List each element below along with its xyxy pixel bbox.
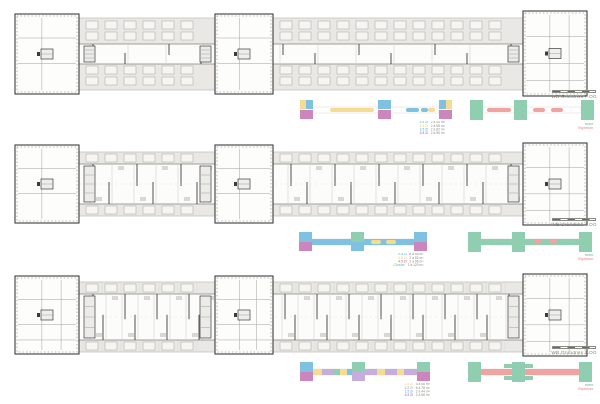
legend-entry: Eigentum (578, 127, 593, 131)
unit-color-segment (377, 369, 385, 375)
unit-color-segment (579, 362, 592, 382)
unit-color-segment (525, 364, 533, 368)
unit-mix-legend: MieteEigentum (578, 254, 593, 261)
plan-title: WB Grundriss 4.OG (552, 223, 597, 228)
legend-entry: Eigentum (578, 258, 593, 262)
unit-color-segment (397, 369, 404, 375)
unit-color-segment (404, 369, 417, 375)
drawing-sheet: WB Grundriss 7.OG WB Grundriss 4.OG WB G… (0, 0, 600, 404)
floor-plan-top (0, 6, 600, 98)
unit-color-segment (322, 369, 333, 375)
unit-color-segment (414, 242, 427, 251)
unit-color-segment (479, 369, 581, 375)
floor-plan-middle (0, 140, 600, 232)
unit-color-segment (340, 369, 347, 375)
plan-title: WB Grundriss 1.OG (552, 351, 597, 356)
unit-color-segment (351, 232, 364, 242)
unit-color-segment (386, 240, 396, 244)
unit-color-segment (300, 372, 313, 381)
unit-mix-legend: 1.5 Zi2 à 44 m²2.5 Zi2 à 58 m²3.5 Zi2 à … (420, 121, 445, 136)
unit-color-segment (512, 362, 525, 382)
floor-plan-bottom (0, 272, 600, 358)
unit-color-segment (385, 369, 397, 375)
unit-color-segment (378, 110, 391, 119)
unit-color-segment (421, 108, 428, 112)
unit-color-segment (352, 372, 365, 381)
unit-color-segment (406, 108, 419, 112)
unit-color-segment (417, 372, 430, 381)
unit-color-segment (306, 100, 313, 109)
unit-color-segment (487, 108, 511, 112)
unit-color-segment (351, 242, 364, 251)
unit-color-segment (551, 108, 563, 112)
unit-color-segment (378, 100, 391, 109)
unit-color-segment (525, 376, 533, 380)
legend-entry: Cluster1 à 120 m² (393, 264, 423, 268)
unit-color-segment (428, 108, 435, 112)
unit-mix-legend: MieteEigentum (578, 123, 593, 130)
unit-color-segment (439, 110, 452, 119)
unit-color-segment (581, 100, 594, 120)
unit-mix-legend: 2.5 Zi4 à 58 m²3.5 Zi6 à 78 m²1.5 Zi2 à … (405, 383, 430, 398)
unit-color-segment (300, 362, 313, 372)
unit-color-segment (470, 100, 483, 120)
unit-color-segment (330, 108, 374, 112)
unit-color-segment (446, 100, 452, 109)
unit-color-segment (468, 362, 481, 382)
unit-color-segment (533, 108, 545, 112)
scale-bar (552, 218, 596, 221)
unit-color-segment (300, 100, 306, 109)
unit-color-segment (534, 240, 542, 244)
legend-entry: 4.5 Zi2 à 96 m² (405, 394, 430, 398)
unit-color-segment (417, 362, 430, 372)
unit-color-segment (439, 100, 446, 109)
unit-color-segment (549, 240, 557, 244)
unit-color-segment (333, 369, 340, 375)
unit-color-segment (512, 232, 525, 252)
unit-color-segment (347, 369, 352, 375)
scale-bar (552, 90, 596, 93)
unit-color-segment (313, 369, 322, 375)
unit-color-segment (414, 232, 427, 242)
unit-color-segment (299, 242, 312, 251)
scale-bar (552, 346, 596, 349)
unit-color-segment (579, 232, 592, 252)
unit-color-segment (479, 239, 581, 245)
unit-mix-diagram-left (299, 231, 427, 253)
unit-color-segment (365, 369, 377, 375)
unit-mix-diagram-left (300, 99, 452, 121)
unit-mix-diagram-right (470, 99, 594, 121)
unit-mix-legend: 2.5 Zi8 à 58 m²3.5 Zi2 à 82 m²4.5 Zi2 à … (393, 253, 423, 268)
legend-entry: 4.5 Zi2 à 96 m² (420, 132, 445, 136)
unit-mix-legend: MieteEigentum (578, 384, 593, 391)
unit-color-segment (371, 240, 381, 244)
unit-color-segment (468, 232, 481, 252)
unit-color-segment (300, 110, 313, 119)
unit-color-segment (514, 100, 527, 120)
unit-color-segment (299, 232, 312, 242)
legend-entry: Eigentum (578, 388, 593, 392)
unit-color-segment (504, 364, 512, 368)
unit-mix-diagram-left (300, 361, 430, 383)
unit-mix-diagram-right (468, 231, 592, 253)
unit-color-segment (504, 376, 512, 380)
unit-mix-diagram-right (468, 361, 592, 383)
unit-color-segment (352, 362, 365, 372)
